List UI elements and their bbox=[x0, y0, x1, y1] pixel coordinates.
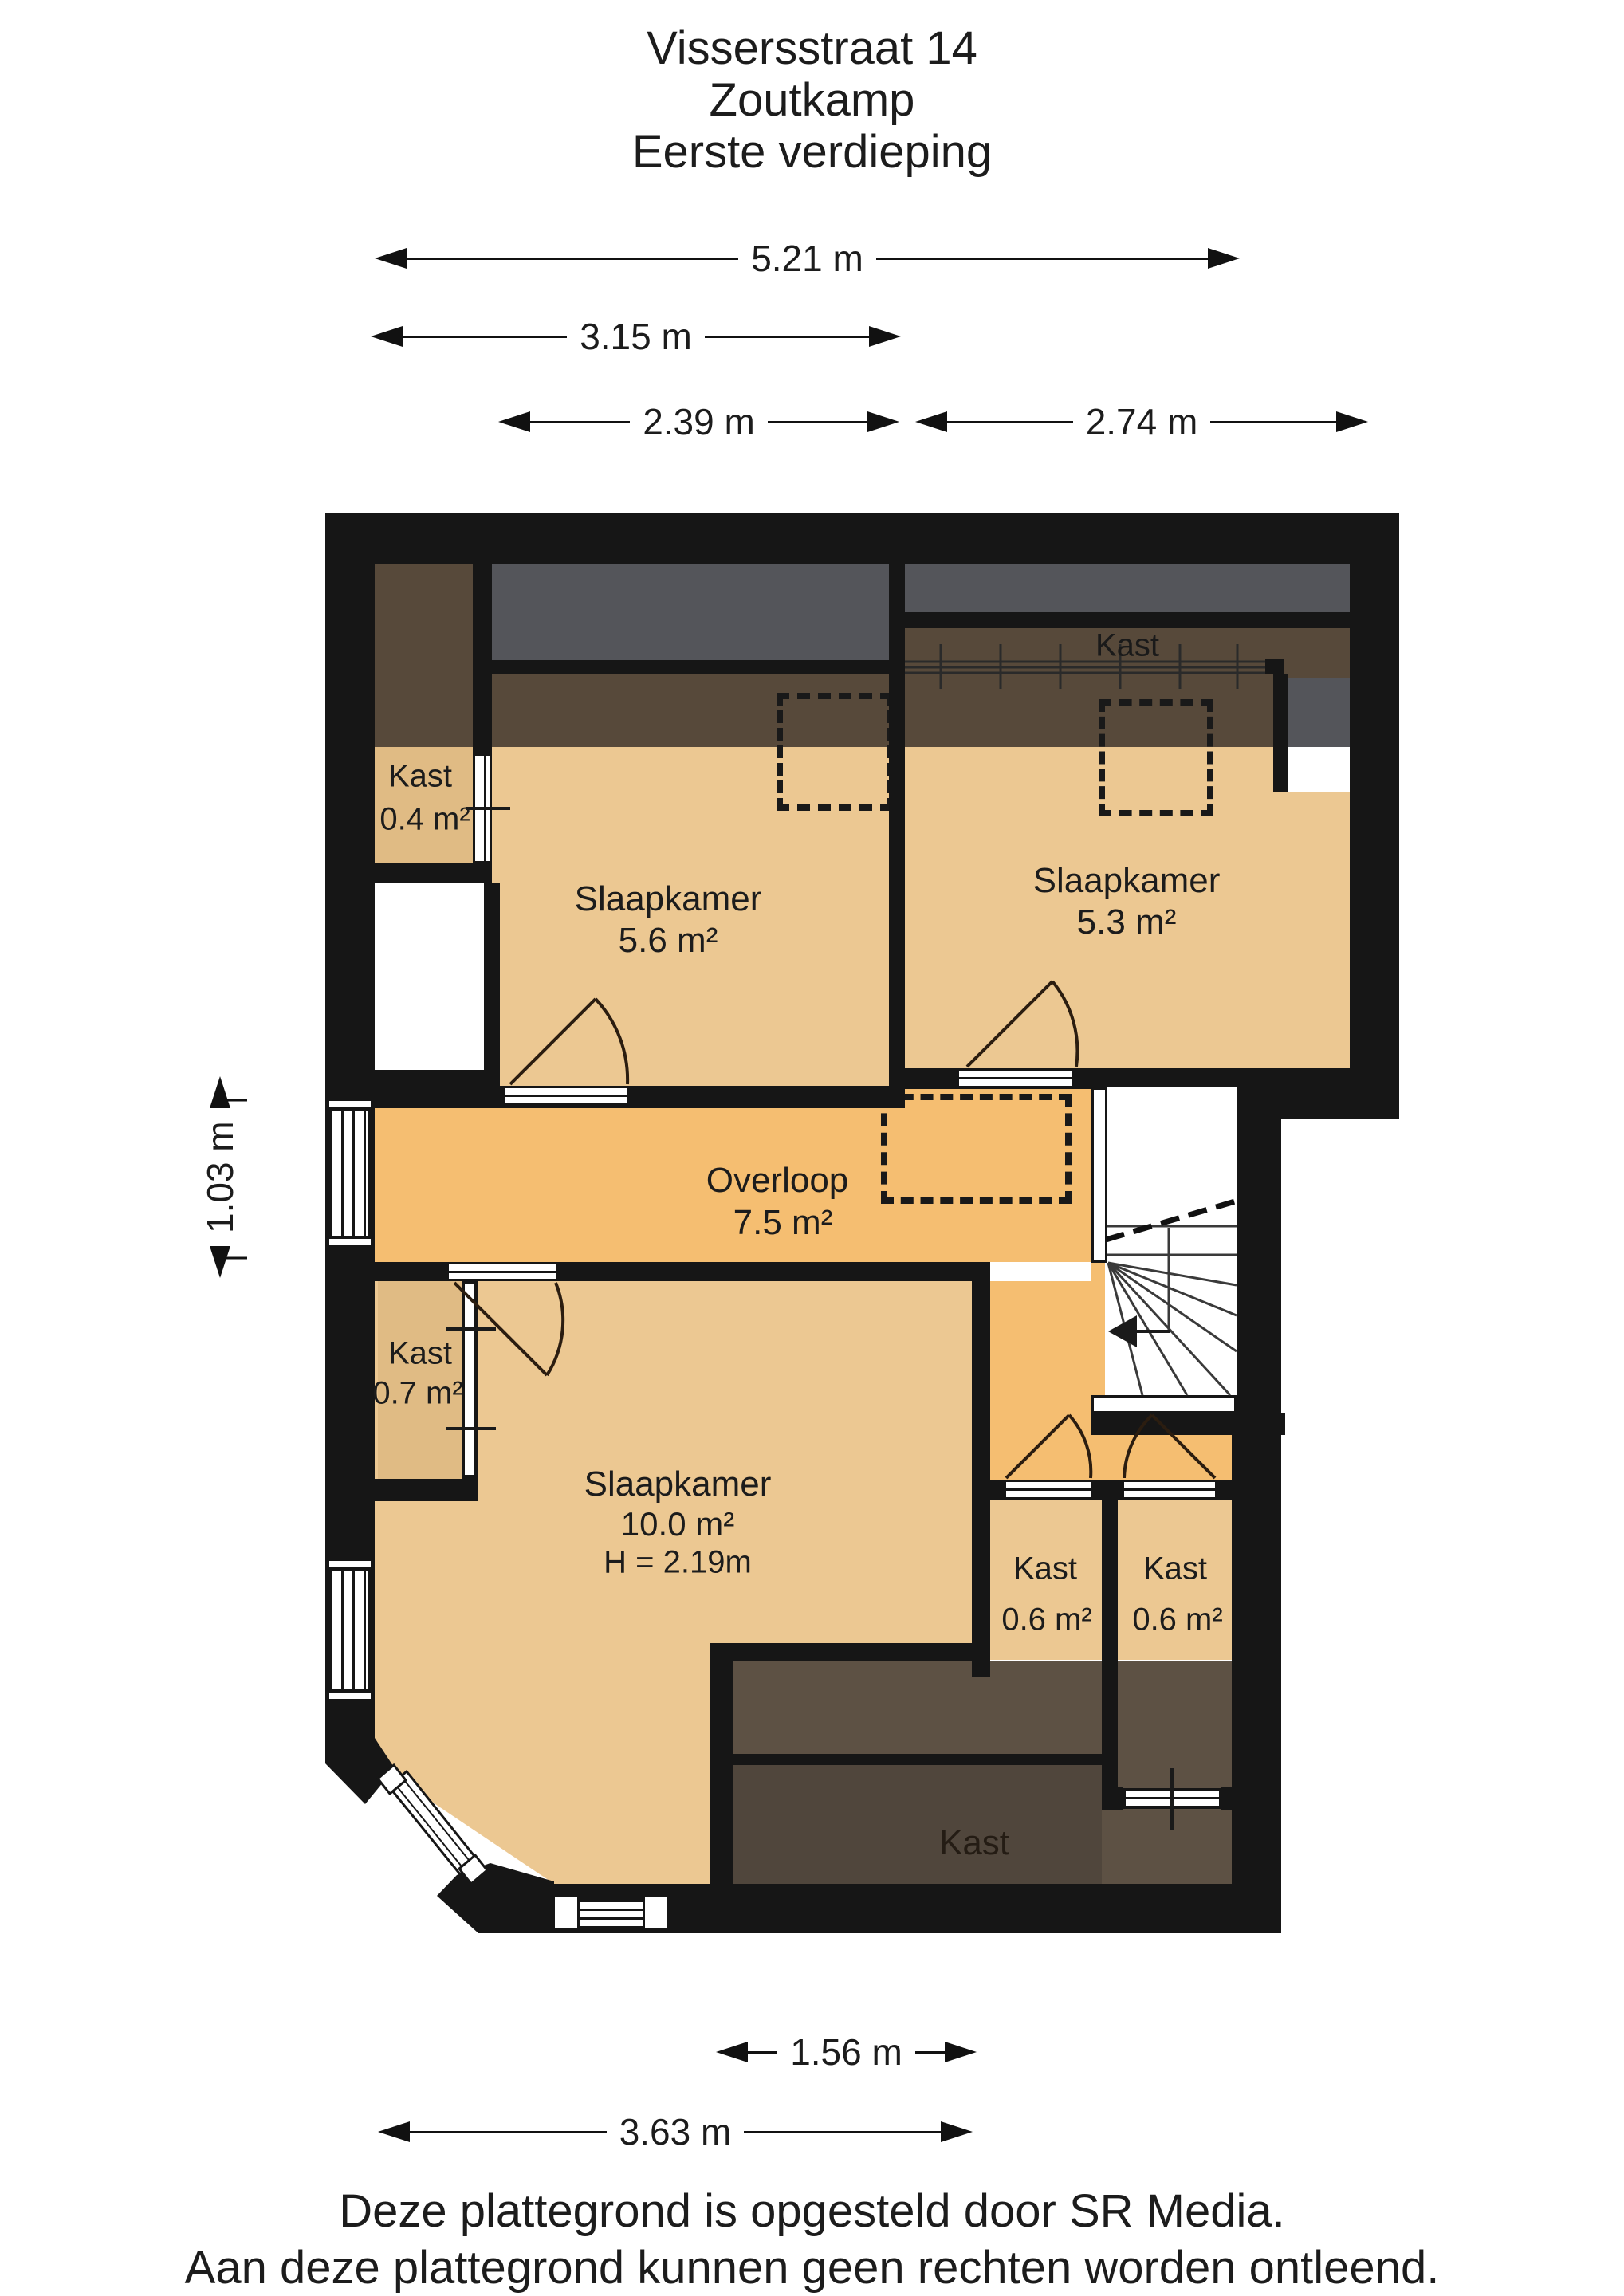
disclaimer: Deze plattegrond is opgesteld door SR Me… bbox=[0, 2183, 1624, 2296]
label-overloop-name: Overloop bbox=[706, 1161, 849, 1201]
disclaimer-line2: Aan deze plattegrond kunnen geen rechten… bbox=[0, 2239, 1624, 2296]
disclaimer-line1: Deze plattegrond is opgesteld door SR Me… bbox=[0, 2183, 1624, 2239]
label-kast04-name: Kast bbox=[388, 759, 452, 795]
stair-cut-line bbox=[1106, 1201, 1235, 1240]
label-kast06r-name: Kast bbox=[1143, 1551, 1207, 1587]
bay-window bbox=[378, 1765, 487, 1884]
label-kast-top: Kast bbox=[1095, 628, 1159, 664]
arrow-left-icon bbox=[716, 2042, 748, 2062]
label-kast07-name: Kast bbox=[388, 1336, 452, 1372]
label-kast06r-area: 0.6 m² bbox=[1132, 1602, 1222, 1638]
label-s56-area: 5.6 m² bbox=[619, 921, 718, 961]
label-s10-area: 10.0 m² bbox=[621, 1505, 734, 1543]
label-s53-name: Slaapkamer bbox=[1033, 861, 1221, 901]
label-kast06l-name: Kast bbox=[1013, 1551, 1077, 1587]
label-s10-height: H = 2.19m bbox=[604, 1545, 752, 1581]
label-kast07-area: 0.7 m² bbox=[372, 1376, 462, 1412]
floorplan-page: { "title": { "line1": "Vissersstraat 14"… bbox=[0, 0, 1624, 2296]
arrow-right-icon bbox=[945, 2042, 977, 2062]
plan-linework bbox=[0, 0, 1624, 2296]
label-overloop-area: 7.5 m² bbox=[733, 1203, 833, 1243]
label-s56-name: Slaapkamer bbox=[575, 879, 762, 919]
stairs bbox=[1107, 1226, 1237, 1395]
clothes-rail bbox=[905, 644, 1265, 689]
kast-door-ticks bbox=[446, 808, 1172, 1830]
label-kast06l-area: 0.6 m² bbox=[1001, 1602, 1091, 1638]
label-kast-bottom: Kast bbox=[939, 1823, 1009, 1863]
dim-ticks bbox=[226, 1100, 247, 1258]
label-s53-area: 5.3 m² bbox=[1077, 902, 1177, 942]
arrow-left-icon bbox=[378, 2121, 410, 2142]
door-arcs bbox=[454, 981, 1215, 1478]
dimension-1-56: 1.56 m bbox=[716, 2031, 977, 2074]
arrow-right-icon bbox=[941, 2121, 973, 2142]
label-s10-name: Slaapkamer bbox=[584, 1464, 772, 1504]
label-kast04-area: 0.4 m² bbox=[379, 802, 470, 838]
dimension-3-63: 3.63 m bbox=[378, 2110, 973, 2153]
